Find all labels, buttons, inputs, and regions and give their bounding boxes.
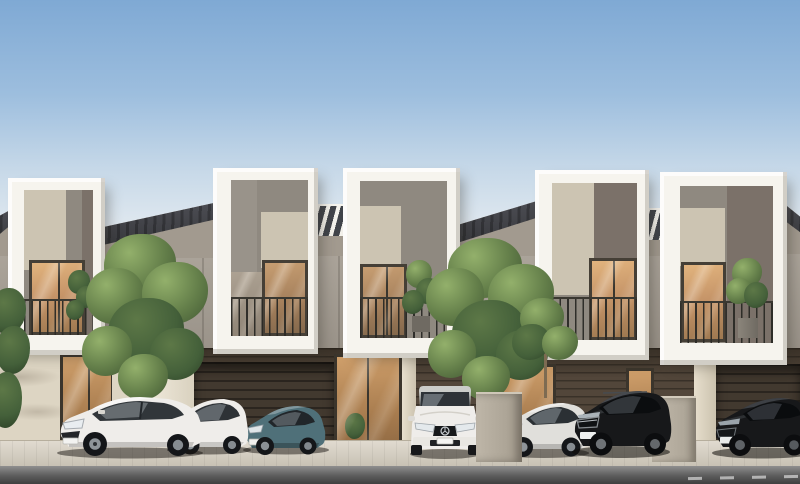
townhouse-unit-2 <box>213 168 318 354</box>
facade-panel-area-5 <box>680 186 773 343</box>
balcony-plant-5 <box>726 258 768 342</box>
beige-panel <box>360 206 401 266</box>
foliage-blob <box>744 282 768 308</box>
dark-panel <box>594 183 637 263</box>
balcony-railing-2 <box>231 297 308 336</box>
car-black-suv <box>569 372 673 460</box>
foliage-blob <box>0 326 30 374</box>
townhouse-unit-5 <box>660 172 787 365</box>
car-black-sedan <box>710 380 800 460</box>
rendering-canvas <box>0 0 800 484</box>
beige-panel <box>552 183 594 295</box>
road <box>0 466 800 484</box>
pergola-slats-1 <box>316 204 346 240</box>
car-white-coupe <box>54 378 206 460</box>
car-white-compact-front <box>408 382 482 460</box>
facade-panel-area-2 <box>231 180 308 336</box>
gap-wall-1 <box>316 236 346 256</box>
beige-panel <box>24 190 66 270</box>
plant-pot <box>738 318 758 338</box>
car-teal-sedan <box>241 392 331 456</box>
foliage-blob <box>542 326 578 360</box>
foliage-blob <box>0 372 22 428</box>
beige-panel <box>680 208 725 266</box>
foliage-blob <box>66 300 84 320</box>
tree-planter-pedestal <box>476 392 522 462</box>
foliage-blob <box>402 290 424 314</box>
interior-plant-silhouette <box>345 413 365 439</box>
bush-far-left <box>0 288 36 444</box>
